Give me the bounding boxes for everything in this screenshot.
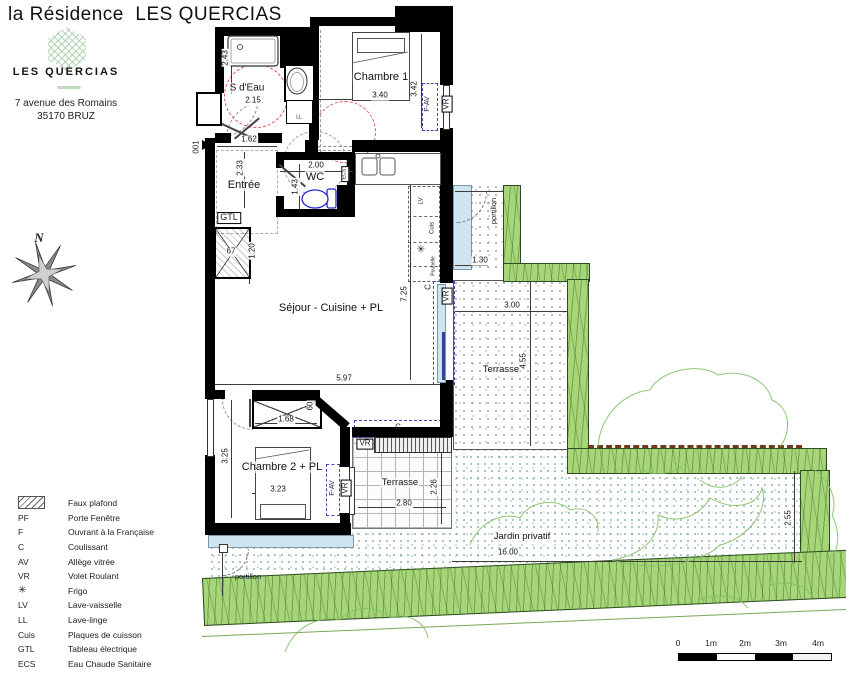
legend-label-porte-fen-tre: Porte Fenêtre — [68, 513, 120, 523]
annotation-ecs: ECS — [341, 166, 349, 182]
legend-label-eau-chaude-sanitaire: Eau Chaude Sanitaire — [68, 659, 151, 669]
legend-label-volet-roulant: Volet Roulant — [68, 571, 119, 581]
dimension-label-3-25: 3.25 — [222, 447, 231, 465]
scale-label-0: 0 — [676, 638, 681, 648]
dimension-label-60: 60 — [307, 401, 316, 412]
dimension-label-2-33: 2.33 — [237, 159, 246, 177]
dimension-label-4-55: 4.55 — [520, 352, 529, 370]
dimension-label-2-26: 2.26 — [431, 478, 440, 496]
scale-label-1m: 1m — [705, 638, 717, 648]
room-label-s-jour-cuisine-pl: Séjour - Cuisine + PL — [278, 302, 384, 314]
legend-row: CCoulissant — [18, 540, 238, 555]
legend-symbol-c: C — [18, 542, 68, 552]
annotation-poubelle: Poubelle — [431, 256, 437, 275]
legend-row: PFPorte Fenêtre — [18, 511, 238, 526]
frigo-icon: ✳ — [18, 585, 68, 596]
annotation-c: C — [425, 284, 434, 290]
room-label-jardin-privatif: Jardin privatif — [493, 532, 552, 542]
legend-label-tableau-lectrique: Tableau électrique — [68, 644, 137, 654]
annotation-f-av: F-AV — [424, 96, 432, 111]
legend-label-ouvrant-la-fran-aise: Ouvrant à la Française — [68, 527, 154, 537]
legend-row: Faux plafond — [18, 496, 238, 511]
legend-row: AVAllège vitrée — [18, 554, 238, 569]
legend-symbol-pf: PF — [18, 513, 68, 523]
annotation-vr: VR — [341, 479, 352, 496]
room-label-wc: WC — [305, 171, 325, 183]
legend-row: VRVolet Roulant — [18, 569, 238, 584]
dimension-label-3-23: 3.23 — [269, 486, 287, 495]
legend-symbol-av: AV — [18, 557, 68, 567]
legend-symbol-ecs: ECS — [18, 659, 68, 669]
faux-plafond-swatch — [18, 496, 45, 509]
dimension-label-2-00: 2.00 — [307, 162, 325, 171]
floor-plan-page: la Résidence LES QUERCIAS LES QUERCIAS 7… — [0, 0, 846, 675]
legend-symbol-gtl: GTL — [18, 644, 68, 654]
scale-label-3m: 3m — [775, 638, 787, 648]
legend-row: ECSEau Chaude Sanitaire — [18, 657, 238, 672]
legend-row: ✳Frigo — [18, 584, 238, 599]
dimension-label-7-25: 7.25 — [401, 285, 410, 303]
legend-label-frigo: Frigo — [68, 586, 87, 596]
dimension-label-1-30: 1.30 — [471, 257, 489, 266]
annotation-portillon: portillon — [490, 198, 498, 224]
annotation-c: C — [395, 424, 401, 433]
dimension-label-16-00: 16.00 — [497, 549, 519, 558]
legend: Faux plafondPFPorte FenêtreFOuvrant à la… — [18, 496, 238, 671]
legend-label-plaques-de-cuisson: Plaques de cuisson — [68, 630, 142, 640]
annotation-vr: VR — [442, 287, 453, 304]
annotation-ll: LL — [296, 115, 302, 121]
room-label-entr-e: Entrée — [227, 179, 261, 191]
legend-symbol-vr: VR — [18, 571, 68, 581]
scale-label-2m: 2m — [739, 638, 751, 648]
dimension-label-1-20: 1.20 — [249, 242, 258, 260]
legend-row: LVLave-vaisselle — [18, 598, 238, 613]
frigo-icon: ✳ — [417, 245, 425, 256]
legend-row: CuisPlaques de cuisson — [18, 627, 238, 642]
legend-label-lave-vaisselle: Lave-vaisselle — [68, 600, 122, 610]
room-label-terrasse: Terrasse — [482, 365, 520, 375]
legend-label-faux-plafond: Faux plafond — [68, 498, 117, 508]
annotation-001: 001 — [193, 140, 202, 153]
dimension-label-3-00: 3.00 — [503, 302, 521, 311]
annotation-f-av: F-AV — [329, 480, 337, 495]
room-label-chambre-1: Chambre 1 — [353, 71, 409, 83]
dimension-label-2-15: 2.15 — [244, 97, 262, 106]
hatch-swatch — [18, 496, 68, 511]
dimension-label-1-68: 1.68 — [277, 416, 295, 425]
legend-symbol-cuis: Cuis — [18, 630, 68, 640]
annotation-vr: VR — [356, 439, 373, 450]
legend-symbol-f: F — [18, 527, 68, 537]
annotation-lv: LV — [419, 198, 426, 205]
dimension-label-2-80: 2.80 — [395, 500, 413, 509]
legend-label-lave-linge: Lave-linge — [68, 615, 107, 625]
legend-row: LLLave-linge — [18, 613, 238, 628]
dimension-label-2-55: 2.55 — [785, 509, 794, 527]
room-label-s-d-eau: S d'Eau — [229, 83, 266, 94]
scale-bar-segments — [678, 653, 832, 661]
room-label-terrasse: Terrasse — [381, 478, 419, 488]
annotation-gtl: GTL — [217, 212, 241, 224]
annotation-67: 67 — [226, 248, 237, 257]
annotation-cuis: Cuis — [430, 222, 437, 234]
dimension-label-5-97: 5.97 — [335, 375, 353, 384]
legend-row: FOuvrant à la Française — [18, 525, 238, 540]
legend-label-coulissant: Coulissant — [68, 542, 108, 552]
dimension-label-3-40: 3.40 — [371, 92, 389, 101]
dimension-label-1-62: 1.62 — [240, 136, 258, 145]
room-label-chambre-2-pl: Chambre 2 + PL — [241, 461, 323, 473]
annotation-portillon: portillon — [235, 573, 261, 581]
legend-label-all-ge-vitr-e: Allège vitrée — [68, 557, 115, 567]
scale-label-4m: 4m — [812, 638, 824, 648]
scale-bar: 01m2m3m4m — [670, 638, 840, 670]
dimension-label-2-43: 2.43 — [222, 49, 231, 67]
legend-symbol-lv: LV — [18, 600, 68, 610]
dimension-label-1-43: 1.43 — [292, 178, 301, 196]
legend-symbol-ll: LL — [18, 615, 68, 625]
legend-row: GTLTableau électrique — [18, 642, 238, 657]
annotation-vr: VR — [442, 95, 453, 112]
dimension-label-3-42: 3.42 — [411, 80, 420, 98]
